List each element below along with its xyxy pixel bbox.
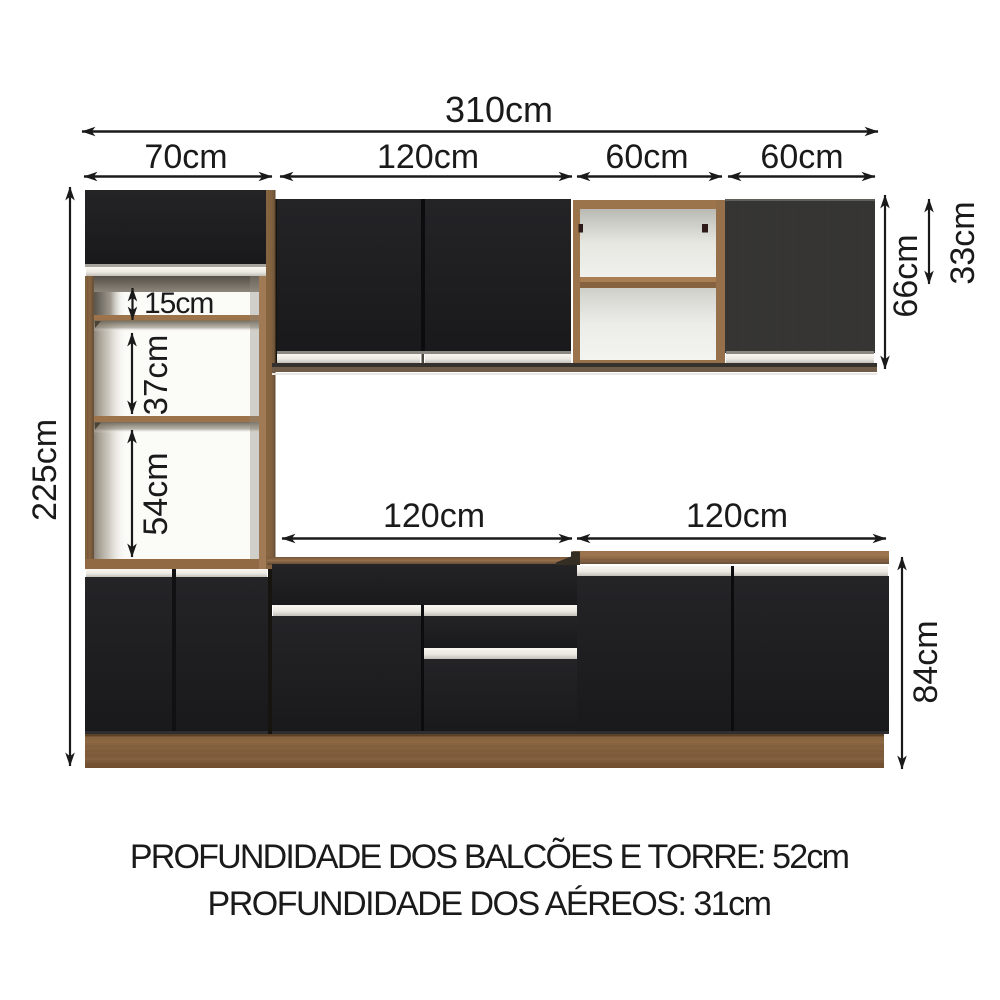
svg-text:66cm: 66cm [887, 234, 925, 317]
svg-text:60cm: 60cm [605, 138, 688, 176]
svg-text:120cm: 120cm [383, 497, 485, 535]
svg-text:70cm: 70cm [144, 138, 227, 176]
svg-text:33cm: 33cm [944, 201, 982, 284]
svg-text:60cm: 60cm [760, 138, 843, 176]
svg-text:310cm: 310cm [445, 89, 553, 130]
svg-text:120cm: 120cm [686, 497, 788, 535]
svg-text:PROFUNDIDADE DOS AÉREOS: 31cm: PROFUNDIDADE DOS AÉREOS: 31cm [208, 885, 771, 923]
svg-text:15cm: 15cm [144, 287, 213, 320]
svg-text:84cm: 84cm [907, 620, 945, 703]
svg-text:120cm: 120cm [377, 138, 479, 176]
svg-text:PROFUNDIDADE DOS BALCÕES E TOR: PROFUNDIDADE DOS BALCÕES E TORRE: 52cm [130, 838, 849, 876]
svg-text:37cm: 37cm [137, 335, 174, 416]
svg-text:54cm: 54cm [137, 452, 175, 535]
svg-text:225cm: 225cm [26, 419, 64, 521]
